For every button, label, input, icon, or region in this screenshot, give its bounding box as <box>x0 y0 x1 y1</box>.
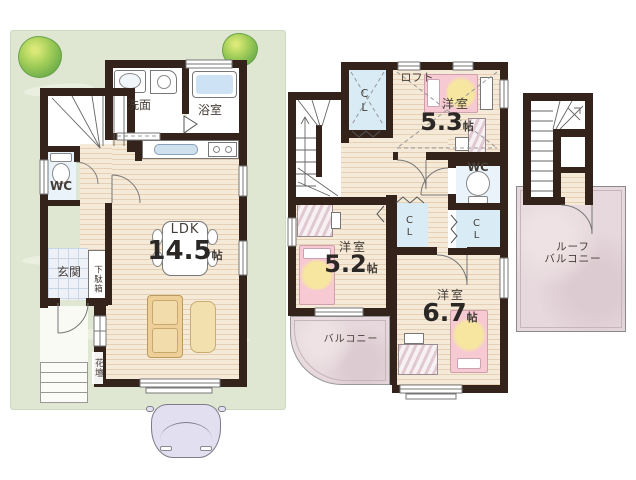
car-headlight <box>200 446 212 451</box>
sofa-cushion <box>152 328 178 353</box>
ldk-unit: 帖 <box>212 249 223 262</box>
toilet-2f-bowl <box>466 171 490 196</box>
closet-mid-label: CL <box>404 213 414 241</box>
toilet-1f <box>50 153 72 162</box>
stairs-2f <box>296 100 341 197</box>
balcony-label: バルコニー <box>318 334 384 345</box>
floor-plan-canvas: 洗面 浴室 WC LDK 14.5帖 玄関 下駄箱 花壇 CL ロフト 洋室 5… <box>0 0 636 480</box>
side-table-5_3 <box>455 137 469 151</box>
bedroom1-size: 5.3帖 <box>406 110 488 134</box>
car-mirror <box>146 406 154 412</box>
bathtub-water <box>196 75 233 94</box>
closet-right-label: CL <box>471 216 481 244</box>
sofa-cushion <box>152 300 178 325</box>
roof-balcony-line2: バルコニー <box>540 254 606 266</box>
stairs-3f-landing <box>561 173 587 205</box>
desk-5_2-chair <box>331 212 341 229</box>
kitchen-sink <box>154 144 198 155</box>
roof-balcony-line1: ルーフ <box>540 242 606 254</box>
car <box>148 398 224 460</box>
shoe-cabinet-label: 下駄箱 <box>93 257 102 301</box>
loft-label: ロフト <box>394 72 440 84</box>
ldk-name: LDK <box>131 223 239 237</box>
flower-bed-label: 花壇 <box>92 352 103 384</box>
desk-5_2 <box>297 203 333 237</box>
stove-burner <box>213 146 220 153</box>
bedroom3-size: 6.7帖 <box>410 300 490 325</box>
washroom-label: 洗面 <box>112 99 166 112</box>
entrance-label: 玄関 <box>46 266 92 279</box>
desk-6_7 <box>398 344 438 375</box>
vanity-basin <box>119 73 141 89</box>
closet-top-label: CL <box>359 86 370 116</box>
stove-burner <box>225 146 232 153</box>
desk-6_7-chair <box>404 333 424 344</box>
car-mirror <box>218 406 226 412</box>
bath-label: 浴室 <box>184 104 236 117</box>
toilet-2f <box>468 196 488 204</box>
planter-box <box>94 308 106 317</box>
ldk-floor <box>106 300 136 379</box>
balcony-floor <box>290 316 390 385</box>
approach-steps <box>40 392 88 403</box>
car-headlight <box>160 446 172 451</box>
ldk-size: 14.5 <box>147 236 211 266</box>
wc-2f-label: WC <box>460 161 496 174</box>
roof-balcony-label: ルーフ バルコニー <box>540 242 606 265</box>
porch <box>40 306 88 362</box>
ldk-label: LDK 14.5帖 <box>131 223 239 264</box>
ottoman <box>190 301 216 353</box>
bed-6_7-foot <box>457 358 481 369</box>
wc-1f-label: WC <box>44 180 78 193</box>
washing-machine-drum <box>157 75 171 89</box>
bedroom2-size: 5.2帖 <box>314 252 388 276</box>
